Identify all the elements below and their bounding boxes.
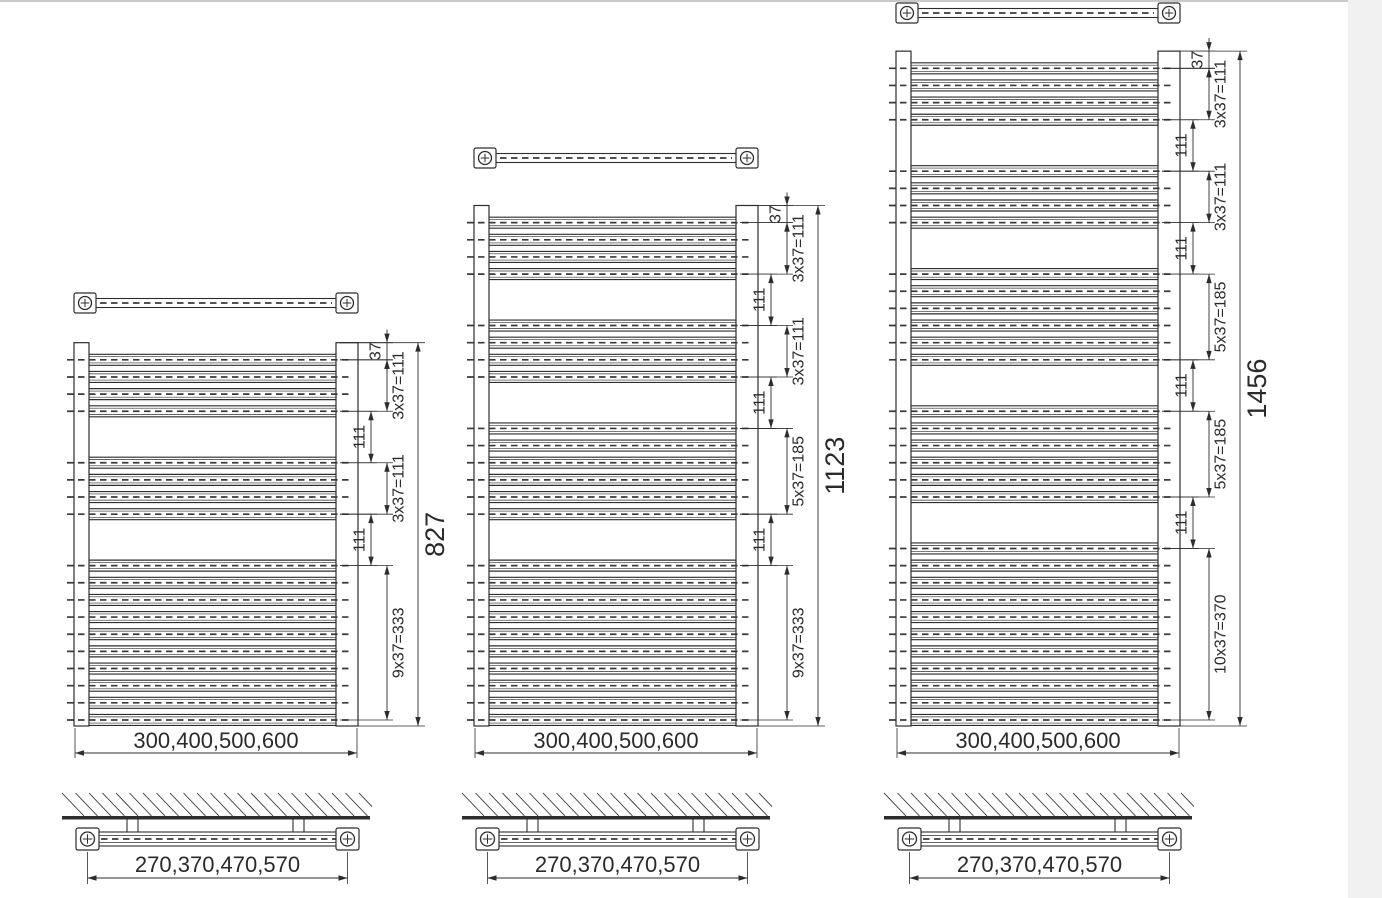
dimension-arrow <box>1190 265 1195 274</box>
dimension-arrow <box>748 750 757 755</box>
dimension-arrow <box>784 223 789 232</box>
dimension-arrow <box>1206 548 1211 557</box>
dimension-arrow <box>384 463 389 472</box>
top-view-bar <box>74 293 358 313</box>
dimension-arrow <box>415 717 420 726</box>
height-dimensions: 373x37=1111113x37=1111115x37=1851115x37=… <box>1162 38 1272 726</box>
front-view <box>467 205 758 726</box>
wall-hatch-line <box>611 793 633 816</box>
wall-hatch-line <box>359 793 372 807</box>
wall-hatch-line <box>251 793 273 816</box>
dimension-arrow <box>768 514 773 523</box>
dimension-arrow <box>415 343 420 352</box>
dimension-label: 9x37=333 <box>391 607 408 678</box>
dimension-label: 111 <box>1174 373 1191 397</box>
wall-hatch-line <box>224 793 246 816</box>
dimension-arrow <box>739 875 748 880</box>
dimension-arrow <box>768 274 773 283</box>
dimension-arrow <box>1206 111 1211 120</box>
dimension-arrow <box>1206 411 1211 420</box>
dimension-label: 3x37=111 <box>1213 163 1230 231</box>
width-dimension: 300,400,500,600 <box>897 728 1179 758</box>
dimension-arrow <box>368 411 373 420</box>
wall-hatch-line <box>665 793 687 816</box>
wall-hatch-line <box>1181 793 1194 807</box>
wall-hatch-line <box>597 793 619 816</box>
dimension-label: 3x37=111 <box>391 454 408 522</box>
wall-hatch-line <box>143 793 165 816</box>
wall-hatch-line <box>476 793 498 816</box>
dimension-arrow <box>768 419 773 428</box>
bracket-dimension-label: 270,370,470,570 <box>535 852 700 877</box>
radiator-technical-drawing: 373x37=1111113x37=1111119x37=333827300,4… <box>0 0 1382 898</box>
top-view-bar <box>896 3 1180 23</box>
dimension-arrow <box>384 334 389 343</box>
wall-hatch-line <box>157 793 179 816</box>
wall-hatch-line <box>719 793 741 816</box>
wall-surface-line <box>462 816 770 820</box>
wall-hatch-line <box>346 793 368 816</box>
dimension-arrow <box>384 505 389 514</box>
wall-hatch-line <box>911 793 933 816</box>
wall-hatch-line <box>1087 793 1109 816</box>
wall-surface-line <box>884 816 1192 820</box>
wall-hatch-line <box>584 793 606 816</box>
dimension-arrow <box>1206 68 1211 77</box>
dimension-arrow <box>488 875 497 880</box>
dimension-arrow <box>1206 711 1211 720</box>
dimension-label: 9x37=333 <box>791 607 808 678</box>
dimension-label: 3x37=111 <box>791 317 808 385</box>
wall-hatch-line <box>489 793 511 816</box>
dimension-label: 5x37=185 <box>1213 419 1230 490</box>
dimension-arrow <box>384 566 389 575</box>
dimension-label: 111 <box>752 528 769 552</box>
dimension-arrow <box>784 265 789 274</box>
dimension-arrow <box>88 875 97 880</box>
wall-hatch-line <box>543 793 565 816</box>
width-dimension-label: 300,400,500,600 <box>955 728 1120 753</box>
wall-hatch-line <box>62 793 84 816</box>
wall-mount-side-view: 270,370,470,570 <box>884 793 1194 884</box>
dimension-arrow <box>1206 42 1211 51</box>
dimension-arrow <box>1206 351 1211 360</box>
dimension-arrow <box>1190 402 1195 411</box>
dimension-arrow <box>475 750 484 755</box>
wall-hatch-line <box>1168 793 1190 816</box>
wall-hatch-line <box>759 793 772 807</box>
wall-hatch-line <box>1033 793 1055 816</box>
dimension-label: 111 <box>752 288 769 312</box>
dimension-arrow <box>1206 214 1211 223</box>
dimension-arrow <box>1206 274 1211 283</box>
dimension-label: 5x37=185 <box>1213 281 1230 352</box>
front-view <box>889 51 1180 726</box>
wall-hatch-line <box>1141 793 1163 816</box>
wall-hatch-line <box>992 793 1014 816</box>
wall-hatch-line <box>530 793 552 816</box>
dimension-arrow <box>368 557 373 566</box>
wall-hatch-line <box>678 793 700 816</box>
dimension-label: 3x37=111 <box>1213 60 1230 128</box>
dimension-label: 111 <box>1174 510 1191 534</box>
wall-mount-side-view: 270,370,470,570 <box>62 793 372 884</box>
wall-hatch-line <box>116 793 138 816</box>
dimension-arrow <box>815 205 820 214</box>
dimension-arrow <box>1161 875 1170 880</box>
dimension-label: 5x37=185 <box>791 436 808 507</box>
dimension-label: 37 <box>368 342 385 360</box>
dimension-arrow <box>768 317 773 326</box>
dimension-label: 111 <box>1174 236 1191 260</box>
dimension-arrow <box>1190 223 1195 232</box>
dimension-label: 37 <box>768 205 785 223</box>
dimension-arrow <box>384 360 389 369</box>
radiator-view-1456: 373x37=1111113x37=1111115x37=1851115x37=… <box>884 3 1272 884</box>
dimension-arrow <box>784 326 789 335</box>
dimension-arrow <box>1237 51 1242 60</box>
wall-hatch-line <box>170 793 192 816</box>
right-rail <box>736 205 758 726</box>
dimension-arrow <box>348 750 357 755</box>
width-dimension-label: 300,400,500,600 <box>133 728 298 753</box>
dimension-arrow <box>1190 162 1195 171</box>
top-view-bar <box>474 148 758 168</box>
wall-hatch-line <box>746 793 768 816</box>
wall-hatch-line <box>638 793 660 816</box>
wall-hatch-line <box>332 793 354 816</box>
wall-hatch-line <box>319 793 341 816</box>
wall-hatch-line <box>238 793 260 816</box>
dimension-label: 827 <box>420 512 450 557</box>
dimension-arrow <box>784 505 789 514</box>
left-rail <box>474 205 489 726</box>
dimension-arrow <box>1190 120 1195 129</box>
dimension-arrow <box>784 711 789 720</box>
dimension-arrow <box>368 514 373 523</box>
dimension-arrow <box>75 750 84 755</box>
wall-hatch-line <box>624 793 646 816</box>
dimension-arrow <box>784 368 789 377</box>
dimension-arrow <box>1190 539 1195 548</box>
wall-hatch-line <box>938 793 960 816</box>
wall-hatch-line <box>1006 793 1028 816</box>
wall-hatch-line <box>305 793 327 816</box>
wall-hatch-line <box>184 793 206 816</box>
bracket-dimension-label: 270,370,470,570 <box>135 852 300 877</box>
dimension-label: 111 <box>1174 133 1191 157</box>
dimension-label: 3x37=111 <box>391 351 408 419</box>
dimension-label: 1456 <box>1242 359 1272 419</box>
left-rail <box>896 51 911 726</box>
wall-hatch-line <box>557 793 579 816</box>
dimension-arrow <box>368 454 373 463</box>
dimension-arrow <box>1190 497 1195 506</box>
wall-hatch-line <box>503 793 525 816</box>
radiator-view-827: 373x37=1111113x37=1111119x37=333827300,4… <box>62 293 450 884</box>
wall-hatch-line <box>1046 793 1068 816</box>
dimension-arrow <box>815 717 820 726</box>
dimension-label: 10x37=370 <box>1213 594 1230 674</box>
dimension-label: 37 <box>1190 51 1207 69</box>
wall-hatch-line <box>130 793 152 816</box>
wall-hatch-line <box>1154 793 1176 816</box>
wall-hatch-line <box>692 793 714 816</box>
wall-hatch-line <box>1019 793 1041 816</box>
dimension-arrow <box>784 566 789 575</box>
wall-hatch-line <box>732 793 754 816</box>
scan-edge-top <box>0 0 1382 2</box>
dimension-label: 111 <box>352 425 369 449</box>
wall-hatch-line <box>76 793 98 816</box>
wall-hatch-line <box>292 793 314 816</box>
dimension-arrow <box>1237 717 1242 726</box>
wall-hatch-line <box>925 793 947 816</box>
bracket-dimension-label: 270,370,470,570 <box>957 852 1122 877</box>
wall-hatch-line <box>1073 793 1095 816</box>
front-view <box>67 343 358 726</box>
wall-hatch-line <box>1100 793 1122 816</box>
dimension-arrow <box>768 557 773 566</box>
wall-hatch-line <box>651 793 673 816</box>
wall-hatch-line <box>462 793 484 816</box>
wall-hatch-line <box>898 793 920 816</box>
wall-hatch-line <box>1114 793 1136 816</box>
dimension-arrow <box>784 428 789 437</box>
wall-hatch-line <box>265 793 287 816</box>
dimension-label: 3x37=111 <box>791 214 808 282</box>
dimension-arrow <box>1170 750 1179 755</box>
wall-hatch-line <box>103 793 125 816</box>
dimension-arrow <box>1206 171 1211 180</box>
wall-hatch-line <box>965 793 987 816</box>
dimension-arrow <box>339 875 348 880</box>
dimension-arrow <box>768 377 773 386</box>
wall-hatch-line <box>197 793 219 816</box>
wall-hatch-line <box>516 793 538 816</box>
dimension-arrow <box>784 196 789 205</box>
wall-hatch-line <box>979 793 1001 816</box>
radiator-view-1123: 373x37=1111113x37=1111115x37=1851119x37=… <box>462 148 850 884</box>
wall-hatch-line <box>278 793 300 816</box>
wall-hatch-line <box>1127 793 1149 816</box>
scan-edge-right <box>1348 0 1382 898</box>
wall-hatch-line <box>952 793 974 816</box>
dimension-label: 111 <box>352 528 369 552</box>
wall-hatch-line <box>884 793 906 816</box>
dimension-arrow <box>897 750 906 755</box>
dimension-arrow <box>1206 488 1211 497</box>
dimension-arrow <box>910 875 919 880</box>
wall-mount-side-view: 270,370,470,570 <box>462 793 772 884</box>
width-dimension-label: 300,400,500,600 <box>533 728 698 753</box>
wall-hatch-line <box>705 793 727 816</box>
dimension-label: 1123 <box>820 437 850 495</box>
height-dimensions: 373x37=1111113x37=1111119x37=333827 <box>340 330 450 726</box>
height-dimensions: 373x37=1111113x37=1111115x37=1851119x37=… <box>740 192 850 726</box>
wall-hatch-line <box>89 793 111 816</box>
width-dimension: 300,400,500,600 <box>75 728 357 758</box>
wall-hatch-line <box>211 793 233 816</box>
drawing-svg: 373x37=1111113x37=1111119x37=333827300,4… <box>0 0 1382 898</box>
dimension-arrow <box>1190 360 1195 369</box>
dimension-arrow <box>384 711 389 720</box>
dimension-label: 111 <box>752 390 769 414</box>
wall-hatch-line <box>1060 793 1082 816</box>
wall-hatch-line <box>570 793 592 816</box>
wall-surface-line <box>62 816 370 820</box>
width-dimension: 300,400,500,600 <box>475 728 757 758</box>
dimension-arrow <box>384 402 389 411</box>
